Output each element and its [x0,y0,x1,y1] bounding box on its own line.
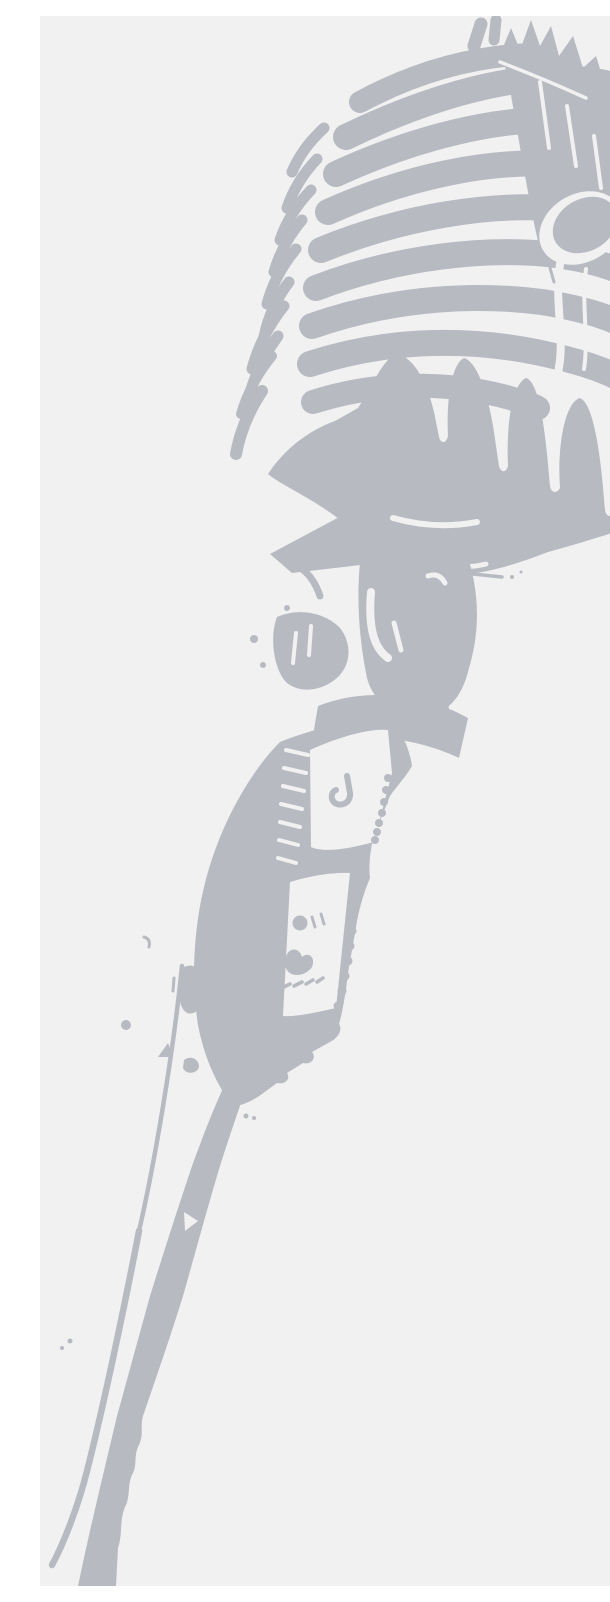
microphone-svg [40,16,610,1586]
body-edge-bead [341,972,350,981]
neck-speck [260,662,266,668]
shell-edge-speck [520,571,523,574]
plate-rivet-dot [375,819,383,827]
body-edge-bead [350,897,359,906]
body-edge-bead [348,927,357,936]
neck-speck [250,635,258,643]
shell-edge-speck [510,575,514,579]
debris-dot [121,1020,131,1030]
neck-speck [284,605,290,611]
plate-rivet-dot [384,774,392,782]
debris-dot [252,1116,256,1120]
grille-crack-highlight [584,269,586,369]
body-edge-bead [344,957,353,966]
plate-label-dot [262,990,266,994]
grille-tuft-spike [474,24,481,46]
microphone-illustration [40,16,610,1586]
debris-dot [60,1346,64,1350]
plate-rivet-dot [378,809,386,817]
plate-rivet-dot [371,836,379,844]
plate-rivet-dot [380,798,388,806]
plate-rivet-dot [382,786,390,794]
body-edge-bead [338,987,347,996]
body-edge-bead [349,912,358,921]
neck-column [358,526,477,715]
grille-tuft-spike [494,20,496,40]
debris-dot [68,1339,73,1344]
debris-dot [244,1114,249,1119]
body-edge-bead [346,942,355,951]
switch-knob-dot [293,916,308,931]
side-patch-tick [173,978,174,991]
body-edge-bead [334,1002,343,1011]
plate-rivet-dot [373,828,381,836]
